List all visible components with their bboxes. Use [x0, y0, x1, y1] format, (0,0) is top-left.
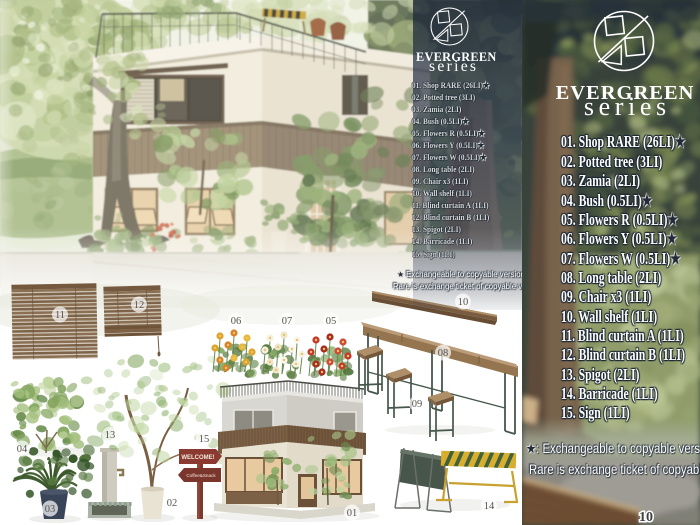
svg-text:10: 10	[639, 510, 653, 525]
